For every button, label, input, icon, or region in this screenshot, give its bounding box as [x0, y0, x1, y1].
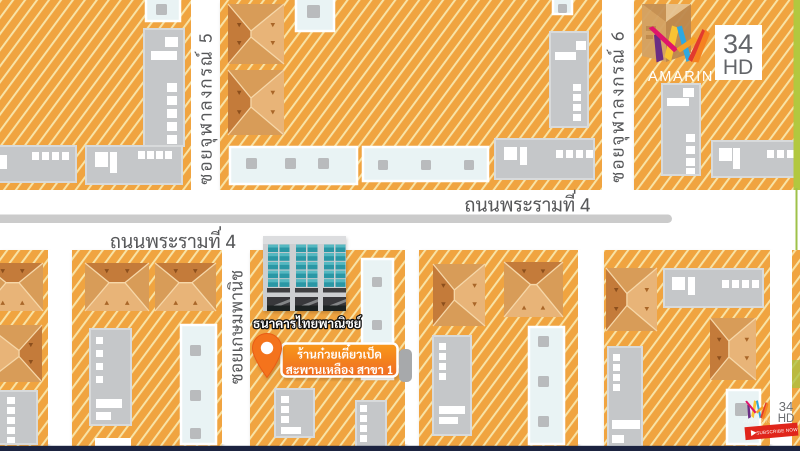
svg-text:AMARIN: AMARIN — [648, 69, 714, 85]
svg-text:AMARIN: AMARIN — [743, 418, 771, 425]
svg-text:34: 34 — [779, 399, 793, 414]
svg-text:34: 34 — [723, 29, 753, 59]
svg-text:HD: HD — [723, 56, 753, 79]
